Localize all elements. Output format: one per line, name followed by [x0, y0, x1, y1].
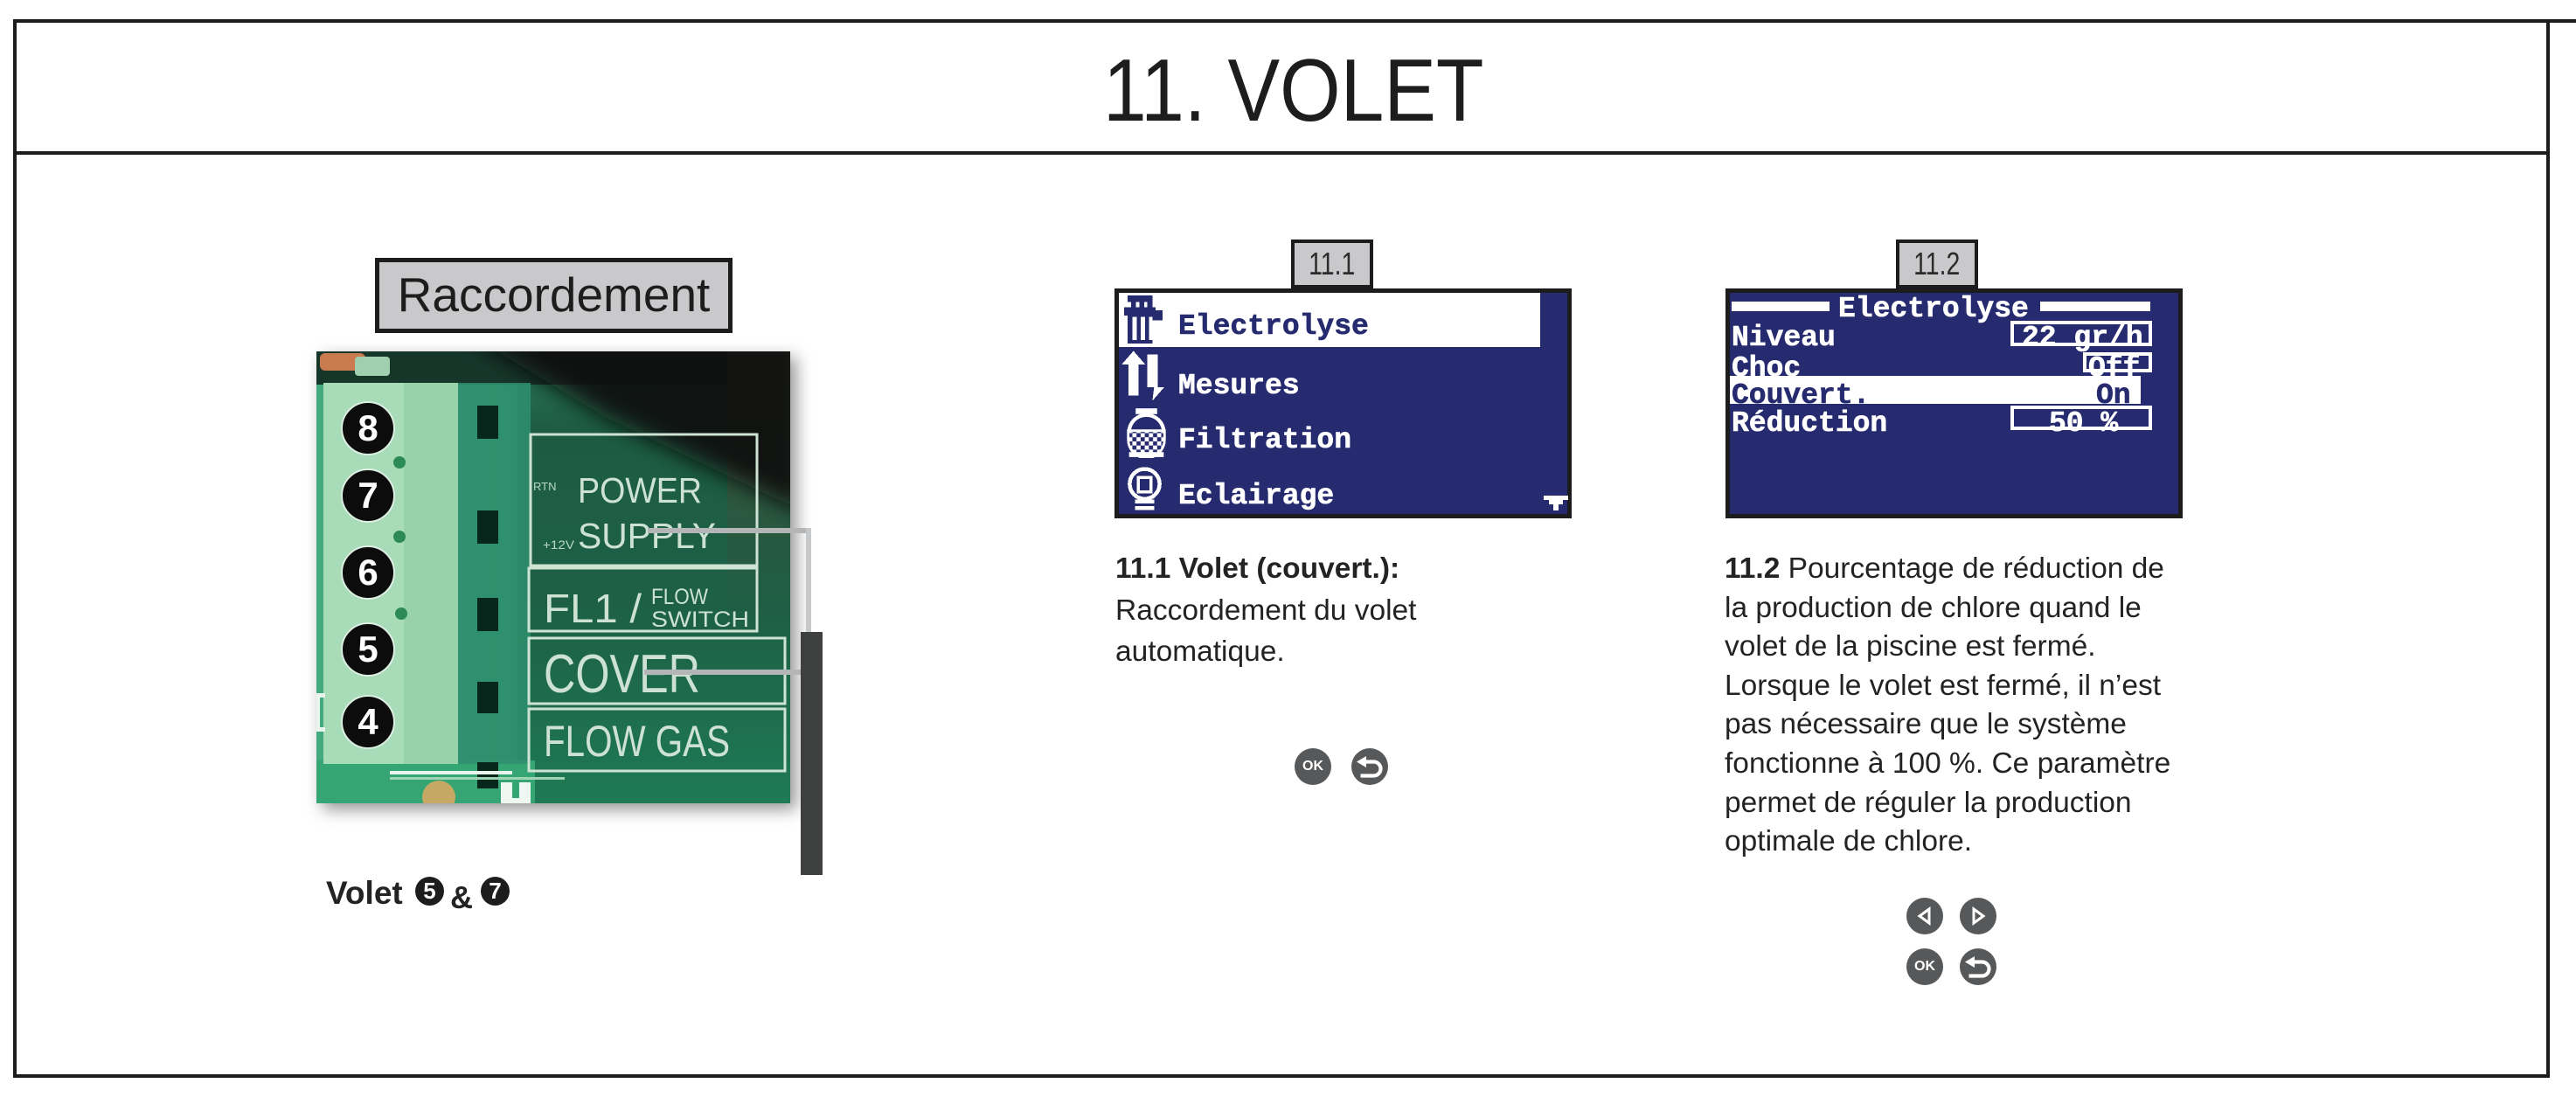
svg-text:5: 5 [358, 628, 378, 670]
svg-text:FLOW: FLOW [651, 585, 708, 609]
svg-text:7: 7 [358, 475, 378, 516]
svg-text:FL1 /: FL1 / [544, 586, 642, 631]
svg-text:SWITCH: SWITCH [651, 608, 749, 632]
svg-text:+12V: +12V [543, 538, 575, 552]
svg-text:FLOW GAS: FLOW GAS [544, 717, 730, 766]
svg-text:8: 8 [358, 407, 378, 448]
svg-text:RTN: RTN [533, 480, 556, 493]
svg-text:4: 4 [358, 701, 378, 742]
svg-text:SUPPLY: SUPPLY [578, 516, 716, 556]
svg-text:6: 6 [358, 552, 378, 593]
svg-text:POWER: POWER [578, 470, 702, 510]
